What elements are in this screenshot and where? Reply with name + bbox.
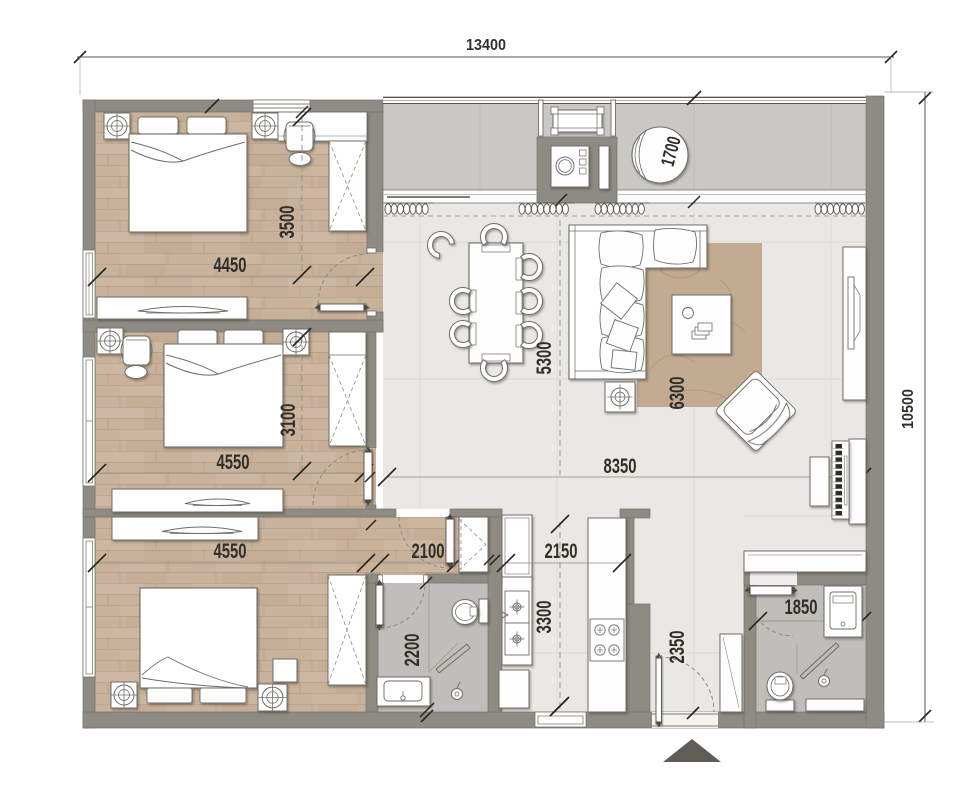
svg-text:4550: 4550 (217, 451, 250, 474)
svg-text:4450: 4450 (214, 254, 247, 277)
svg-text:13400: 13400 (466, 37, 506, 54)
svg-text:3100: 3100 (277, 404, 300, 437)
svg-text:2350: 2350 (666, 631, 689, 664)
svg-text:10500: 10500 (900, 389, 917, 429)
svg-text:8350: 8350 (604, 455, 637, 478)
svg-text:5300: 5300 (533, 342, 556, 375)
svg-text:1850: 1850 (785, 596, 818, 619)
svg-text:4550: 4550 (214, 540, 247, 563)
svg-text:2100: 2100 (412, 540, 445, 563)
svg-text:3500: 3500 (276, 206, 299, 239)
svg-text:3300: 3300 (533, 601, 556, 634)
svg-text:2150: 2150 (545, 540, 578, 563)
svg-text:6300: 6300 (666, 377, 689, 410)
svg-text:2200: 2200 (401, 634, 424, 667)
